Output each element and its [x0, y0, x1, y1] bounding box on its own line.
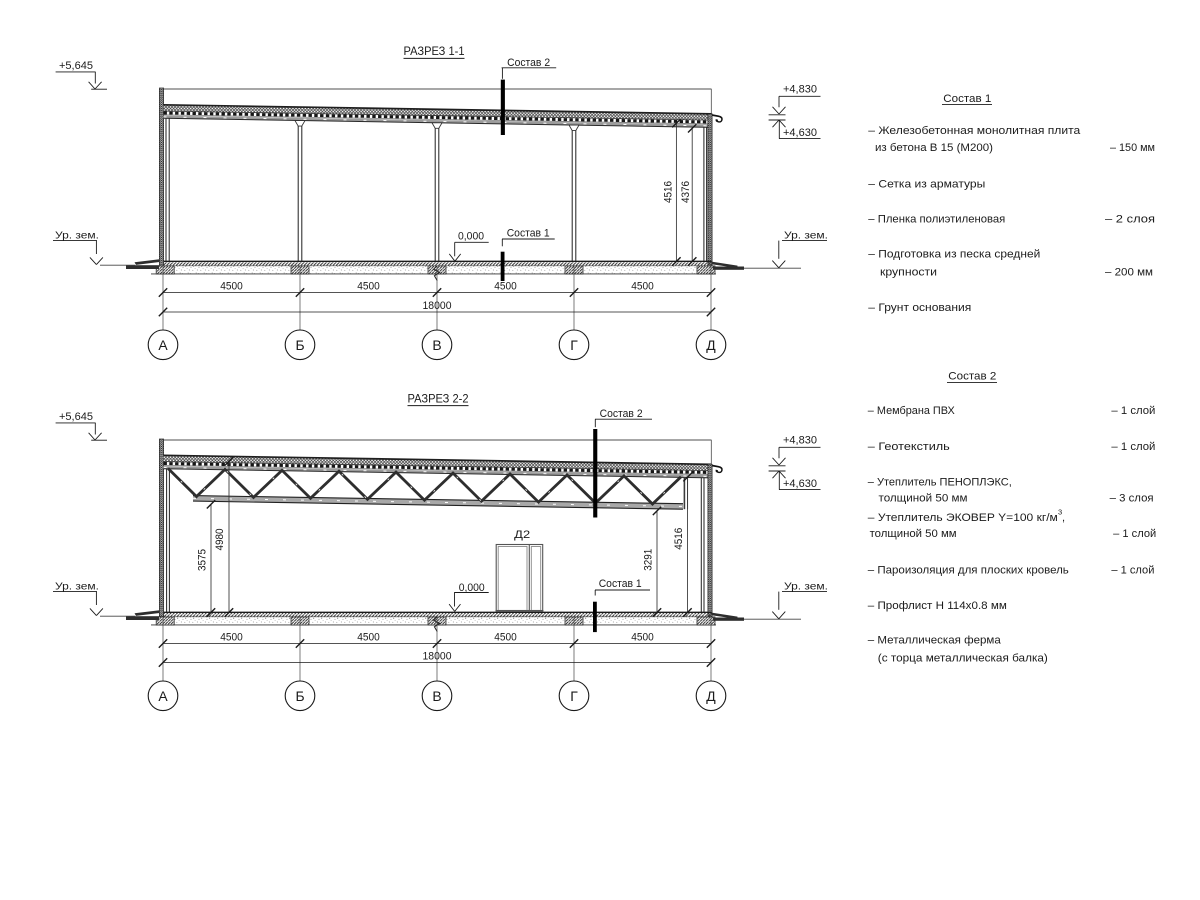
- svg-text:,: ,: [1062, 512, 1065, 524]
- svg-text:Д: Д: [706, 337, 716, 353]
- svg-text:3291: 3291: [642, 549, 654, 571]
- svg-text:18000: 18000: [423, 651, 452, 663]
- svg-text:В: В: [432, 688, 441, 704]
- svg-text:0,000: 0,000: [459, 582, 485, 594]
- svg-text:Г: Г: [570, 337, 578, 353]
- svg-text:В: В: [432, 337, 441, 353]
- svg-text:Ур. зем.: Ур. зем.: [55, 231, 99, 242]
- svg-text:– 2 слоя: – 2 слоя: [1105, 214, 1155, 226]
- svg-text:+4,630: +4,630: [783, 127, 817, 139]
- svg-text:– Пленка полиэтиленовая: – Пленка полиэтиленовая: [868, 214, 1005, 226]
- svg-text:+4,830: +4,830: [783, 435, 817, 447]
- svg-text:Ур. зем.: Ур. зем.: [55, 582, 99, 593]
- svg-text:4376: 4376: [680, 181, 692, 203]
- svg-text:– Профлист Н 114х0.8 мм: – Профлист Н 114х0.8 мм: [868, 600, 1007, 612]
- svg-text:4500: 4500: [631, 631, 654, 643]
- svg-text:РАЗРЕЗ 1-1: РАЗРЕЗ 1-1: [404, 44, 465, 58]
- svg-text:– 200 мм: – 200 мм: [1105, 266, 1153, 278]
- svg-text:толщиной 50 мм: толщиной 50 мм: [870, 528, 957, 540]
- svg-text:– Металлическая ферма: – Металлическая ферма: [868, 635, 1002, 647]
- svg-text:Состав 1: Состав 1: [943, 93, 991, 105]
- svg-text:0,000: 0,000: [458, 230, 484, 242]
- svg-text:4500: 4500: [220, 631, 243, 643]
- svg-text:– Сетка из арматуры: – Сетка из арматуры: [868, 179, 985, 191]
- svg-text:4500: 4500: [494, 631, 517, 643]
- svg-text:– Подготовка из песка средней: – Подготовка из песка средней: [868, 249, 1040, 261]
- svg-text:– Утеплитель ЭКОВЕР Y=100 кг/м: – Утеплитель ЭКОВЕР Y=100 кг/м: [868, 512, 1058, 524]
- svg-text:4500: 4500: [220, 280, 243, 292]
- svg-text:– 3 слоя: – 3 слоя: [1110, 492, 1154, 504]
- svg-text:+4,830: +4,830: [783, 84, 817, 96]
- svg-text:+5,645: +5,645: [59, 411, 93, 423]
- svg-text:Состав 1: Состав 1: [599, 578, 642, 590]
- svg-text:Б: Б: [295, 337, 304, 353]
- svg-text:Д2: Д2: [514, 529, 530, 541]
- svg-text:+5,645: +5,645: [59, 60, 93, 72]
- svg-text:Г: Г: [570, 688, 578, 704]
- svg-text:– 1 слой: – 1 слой: [1111, 565, 1154, 577]
- svg-text:РАЗРЕЗ 2-2: РАЗРЕЗ 2-2: [408, 391, 469, 405]
- svg-text:– 1 слой: – 1 слой: [1111, 405, 1155, 417]
- svg-text:4980: 4980: [214, 528, 226, 550]
- svg-text:3575: 3575: [197, 549, 209, 571]
- svg-text:Состав 1: Состав 1: [507, 227, 550, 239]
- svg-text:Ур. зем.: Ур. зем.: [784, 231, 828, 242]
- svg-text:– Мембрана ПВХ: – Мембрана ПВХ: [868, 405, 956, 417]
- svg-text:толщиной 50 мм: толщиной 50 мм: [879, 492, 968, 504]
- svg-text:4500: 4500: [357, 631, 380, 643]
- svg-text:(с торца металлическая балка): (с торца металлическая балка): [878, 653, 1048, 665]
- svg-text:4516: 4516: [663, 181, 675, 203]
- svg-text:– Грунт основания: – Грунт основания: [868, 302, 971, 314]
- svg-text:– 1 слой: – 1 слой: [1113, 528, 1156, 540]
- svg-text:– Пароизоляция для плоских кро: – Пароизоляция для плоских кровель: [868, 565, 1069, 577]
- svg-text:18000: 18000: [423, 300, 452, 312]
- svg-text:– 1 слой: – 1 слой: [1111, 441, 1155, 453]
- svg-text:4500: 4500: [357, 280, 380, 292]
- svg-text:4500: 4500: [631, 280, 654, 292]
- svg-text:из бетона В 15 (М200): из бетона В 15 (М200): [875, 142, 993, 154]
- svg-text:А: А: [158, 337, 168, 353]
- svg-text:– Геотекстиль: – Геотекстиль: [868, 441, 950, 453]
- svg-text:– 150 мм: – 150 мм: [1110, 142, 1155, 154]
- svg-text:Состав 2: Состав 2: [948, 371, 996, 383]
- svg-text:4500: 4500: [494, 280, 517, 292]
- svg-text:4516: 4516: [673, 528, 685, 550]
- svg-text:Д: Д: [706, 688, 716, 704]
- svg-text:крупности: крупности: [880, 267, 937, 279]
- svg-text:– Железобетонная монолитная п: – Железобетонная монолитная плита: [868, 125, 1081, 137]
- svg-text:Состав 2: Состав 2: [600, 408, 643, 420]
- svg-text:+4,630: +4,630: [783, 478, 817, 490]
- svg-text:Ур. зем.: Ур. зем.: [784, 582, 828, 593]
- svg-text:А: А: [158, 688, 168, 704]
- svg-text:Б: Б: [295, 688, 304, 704]
- svg-text:– Утеплитель ПЕНОПЛЭКС,: – Утеплитель ПЕНОПЛЭКС,: [868, 476, 1012, 488]
